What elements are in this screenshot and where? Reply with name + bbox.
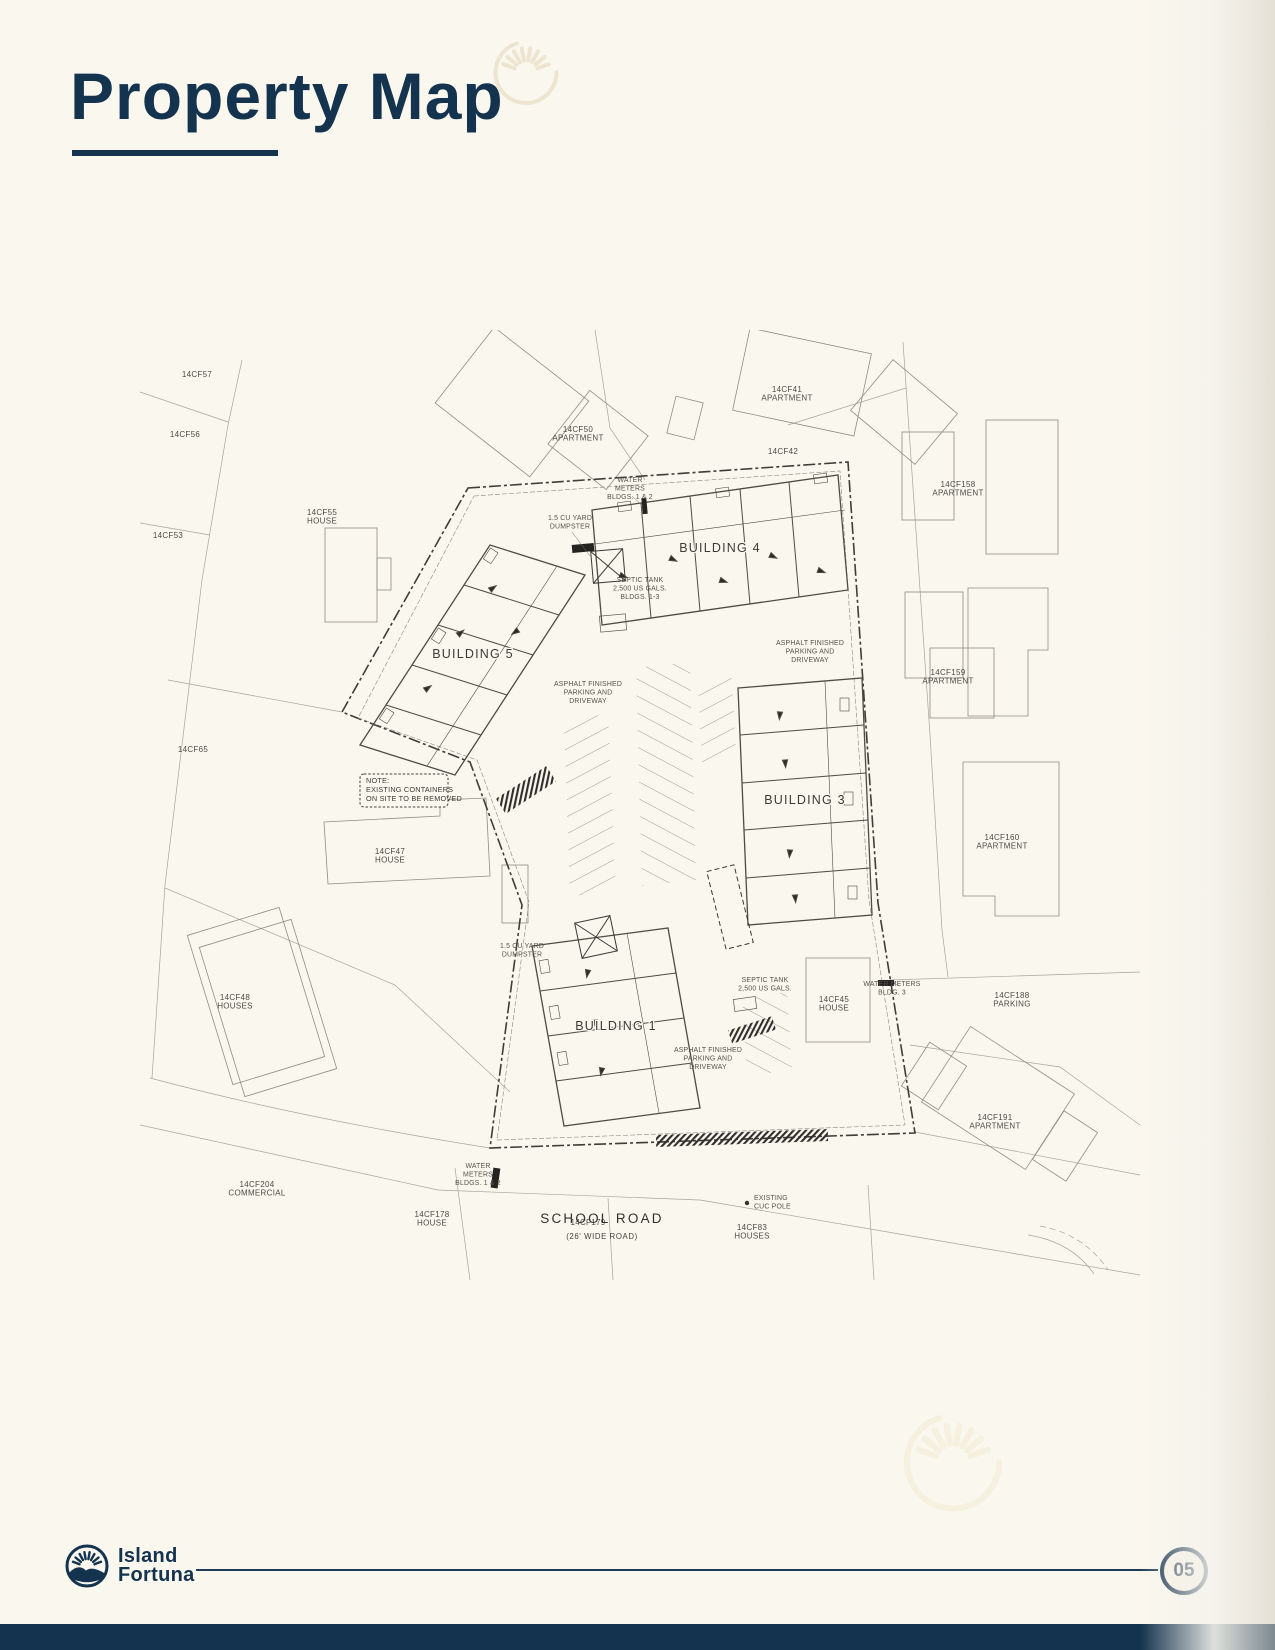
building-labels: BUILDING 5 BUILDING 4 BUILDING 3 BUILDIN… [432,541,845,1033]
parking-bays [564,662,792,1076]
svg-text:BUILDING 1: BUILDING 1 [575,1019,656,1033]
svg-text:BUILDING 5: BUILDING 5 [432,647,513,661]
svg-text:14CF48HOUSES: 14CF48HOUSES [217,993,253,1011]
svg-text:1.5 CU YARDDUMPSTER: 1.5 CU YARDDUMPSTER [500,943,544,958]
svg-text:14CF42: 14CF42 [768,447,799,456]
island-fortuna-logo-icon [64,1543,110,1589]
svg-text:ASPHALT FINISHEDPARKING ANDDRI: ASPHALT FINISHEDPARKING ANDDRIVEWAY [554,681,622,705]
annotation-leaders [572,496,900,986]
svg-text:14CF188PARKING: 14CF188PARKING [993,991,1031,1009]
site-plan-drawing: NOTE:EXISTING CONTAINERSON SITE TO BE RE… [140,330,1140,1280]
page-title: Property Map [70,58,504,134]
sun-watermark-bottom [893,1405,1013,1515]
svg-text:14CF47HOUSE: 14CF47HOUSE [375,847,406,865]
road-width: (26' WIDE ROAD) [566,1232,638,1241]
svg-text:14CF53: 14CF53 [153,531,184,540]
svg-text:SEPTIC TANK2,500 US GALS.BLDGS: SEPTIC TANK2,500 US GALS.BLDGS. 1-3 [613,577,667,601]
svg-text:14CF191APARTMENT: 14CF191APARTMENT [969,1113,1020,1131]
svg-text:BUILDING 3: BUILDING 3 [764,793,845,807]
brand-name: Island Fortuna [118,1547,195,1585]
svg-text:BUILDING 4: BUILDING 4 [679,541,760,555]
brand-lockup: Island Fortuna [64,1543,195,1589]
svg-text:WATERMETERSBLDGS. 1 & 2: WATERMETERSBLDGS. 1 & 2 [607,477,653,501]
svg-text:14CF55HOUSE: 14CF55HOUSE [307,508,338,526]
svg-text:14CF41APARTMENT: 14CF41APARTMENT [761,385,812,403]
svg-text:14CF50APARTMENT: 14CF50APARTMENT [552,425,603,443]
svg-text:1.5 CU YARDDUMPSTER: 1.5 CU YARDDUMPSTER [548,515,592,530]
title-underline [72,150,278,156]
svg-text:14CF45HOUSE: 14CF45HOUSE [819,995,850,1013]
svg-text:14CF204COMMERCIAL: 14CF204COMMERCIAL [228,1180,285,1198]
road-name: SCHOOL ROAD [540,1211,663,1226]
svg-text:14CF160APARTMENT: 14CF160APARTMENT [976,833,1027,851]
svg-text:14CF57: 14CF57 [182,370,213,379]
svg-text:WATER METERSBLDG. 3: WATER METERSBLDG. 3 [863,981,920,996]
svg-text:14CF158APARTMENT: 14CF158APARTMENT [932,480,983,498]
svg-text:14CF65: 14CF65 [178,745,209,754]
dumpster-pad-mid [575,916,618,959]
svg-text:EXISTINGCUC POLE: EXISTINGCUC POLE [754,1195,791,1210]
svg-text:14CF159APARTMENT: 14CF159APARTMENT [922,668,973,686]
brochure-page: Property Map [0,0,1275,1650]
svg-text:14CF83HOUSES: 14CF83HOUSES [734,1223,770,1241]
svg-text:SEPTIC TANK2,500 US GALS.: SEPTIC TANK2,500 US GALS. [738,977,792,992]
svg-text:ASPHALT FINISHEDPARKING ANDDRI: ASPHALT FINISHEDPARKING ANDDRIVEWAY [776,640,844,664]
svg-text:ASPHALT FINISHEDPARKING ANDDRI: ASPHALT FINISHEDPARKING ANDDRIVEWAY [674,1047,742,1071]
page-edge-shadow [1140,0,1275,1650]
page-number-badge: 05 [1160,1547,1208,1595]
footer-bar [0,1624,1275,1650]
svg-text:14CF178HOUSE: 14CF178HOUSE [414,1210,449,1228]
cuc-pole-marker [745,1201,749,1205]
svg-text:14CF56: 14CF56 [170,430,201,439]
brand-name-line2: Fortuna [118,1566,195,1585]
site-plan: NOTE:EXISTING CONTAINERSON SITE TO BE RE… [140,330,1140,1280]
footer-rule [196,1569,1158,1571]
page-number: 05 [1173,1560,1194,1582]
